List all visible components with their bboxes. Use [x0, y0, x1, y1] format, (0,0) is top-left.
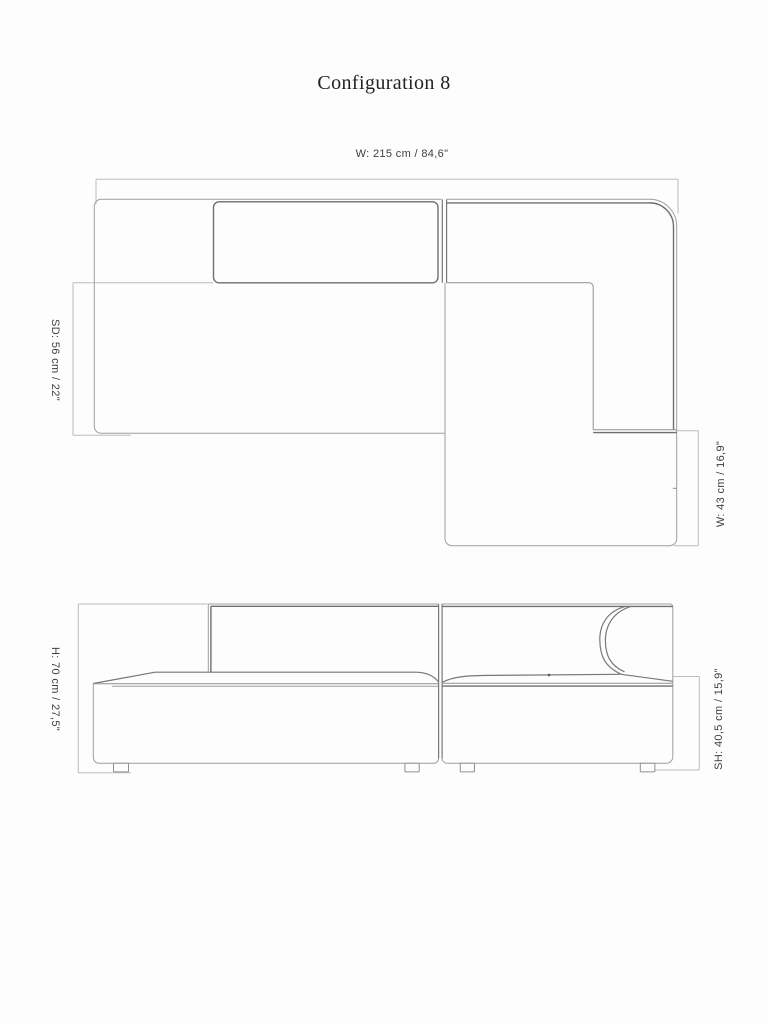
front-left-seat-seam: [93, 684, 438, 686]
plan-view-drawing: [73, 179, 698, 545]
plan-armrest-bottom-edge: [593, 430, 677, 433]
plan-module-junction: [442, 199, 446, 282]
plan-corner-seat-inner-boundary: [447, 283, 594, 430]
plan-width-dimension-bracket: [96, 179, 678, 213]
leg-left: [114, 763, 129, 772]
front-height-dimension-bracket: [78, 604, 207, 773]
front-curved-armrest: [600, 606, 632, 674]
front-left-module-body: [93, 684, 438, 764]
plan-backrest-cushion: [214, 202, 439, 283]
leg-mid-right: [460, 763, 474, 772]
front-left-backrest-panel: [208, 604, 438, 672]
plan-chaise-width-dimension-bracket: [674, 431, 698, 546]
front-left-seat-cushion-top: [93, 672, 438, 683]
front-right-seat-cushion-top: [442, 674, 673, 683]
plan-corner-backrest-armrest-band: [447, 203, 674, 430]
sofa-technical-drawing: [0, 0, 768, 1024]
leg-mid-left: [405, 763, 419, 772]
leg-right: [640, 763, 655, 772]
front-view-drawing: [78, 604, 699, 773]
seat-button-detail: [548, 674, 551, 677]
spec-sheet-page: Configuration 8 W: 215 cm / 84,6" SD: 56…: [0, 0, 768, 1024]
front-right-seat-seam: [442, 683, 673, 686]
plan-corner-module-chaise-outline: [445, 199, 677, 545]
sofa-legs: [114, 763, 655, 772]
front-seat-height-dimension-bracket: [640, 677, 699, 771]
plan-left-module-outline: [94, 199, 445, 433]
